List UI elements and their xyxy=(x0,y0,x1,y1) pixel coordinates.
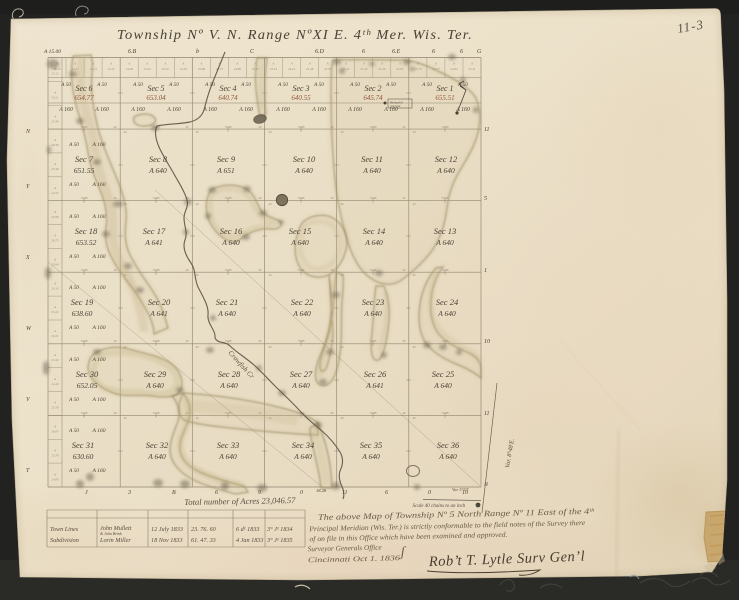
svg-text:640.74: 640.74 xyxy=(218,94,238,102)
svg-text:3: 3 xyxy=(127,490,131,496)
svg-text:10: 10 xyxy=(484,339,490,345)
svg-text:A 640: A 640 xyxy=(292,309,311,318)
svg-text:Sec 14: Sec 14 xyxy=(363,226,386,236)
svg-text:A 50: A 50 xyxy=(277,82,288,88)
svg-text:Sec 11: Sec 11 xyxy=(361,154,383,164)
svg-text:6: 6 xyxy=(215,490,218,496)
svg-text:Sec 33: Sec 33 xyxy=(217,440,239,450)
svg-text:18 Nov 1833: 18 Nov 1833 xyxy=(151,537,183,544)
svg-text:A 160: A 160 xyxy=(166,107,181,113)
svg-text:A 160: A 160 xyxy=(91,397,105,403)
svg-text:A 640: A 640 xyxy=(148,166,167,175)
svg-text:6.D: 6.D xyxy=(315,49,325,55)
svg-text:Sec 32: Sec 32 xyxy=(146,440,169,450)
svg-text:A 641: A 641 xyxy=(144,238,163,247)
svg-text:Sec 8: Sec 8 xyxy=(149,154,168,164)
svg-text:6.B: 6.B xyxy=(128,49,137,55)
svg-text:A 160: A 160 xyxy=(347,107,362,113)
svg-text:A 641: A 641 xyxy=(149,309,168,318)
svg-text:A 50: A 50 xyxy=(240,82,251,88)
svg-text:Sec 34: Sec 34 xyxy=(292,440,315,450)
svg-text:Sec 25: Sec 25 xyxy=(432,369,454,379)
svg-text:A 50: A 50 xyxy=(68,468,79,474)
svg-text:Total number of Acres 23,046.5: Total number of Acres 23,046.57 xyxy=(184,495,296,507)
svg-text:B: B xyxy=(172,490,176,496)
svg-text:A 50: A 50 xyxy=(96,82,107,88)
svg-text:A 15.00: A 15.00 xyxy=(43,49,61,55)
svg-text:J: J xyxy=(85,490,88,496)
svg-text:A 160: A 160 xyxy=(91,468,105,474)
svg-text:A 641: A 641 xyxy=(365,381,384,390)
svg-text:Sec 27: Sec 27 xyxy=(290,369,313,379)
svg-text:645.74: 645.74 xyxy=(363,94,383,102)
svg-text:A 50: A 50 xyxy=(68,357,79,363)
svg-text:0: 0 xyxy=(300,490,303,496)
svg-text:Lorin Miller: Lorin Miller xyxy=(99,537,131,544)
svg-text:Sec 9: Sec 9 xyxy=(217,154,236,164)
svg-text:Sec 4: Sec 4 xyxy=(219,84,236,93)
svg-text:6.E: 6.E xyxy=(392,49,401,55)
svg-text:A 50: A 50 xyxy=(385,82,396,88)
svg-text:Town Lines: Town Lines xyxy=(50,526,79,533)
svg-text:A 640: A 640 xyxy=(436,166,455,175)
svg-text:654.77: 654.77 xyxy=(74,94,94,102)
svg-text:Sec 3: Sec 3 xyxy=(292,84,309,93)
svg-text:A 160: A 160 xyxy=(91,254,105,260)
svg-text:A 640: A 640 xyxy=(221,238,240,247)
svg-text:A 640: A 640 xyxy=(364,238,383,247)
svg-text:Sec 31: Sec 31 xyxy=(72,440,94,450)
svg-text:Sec 12: Sec 12 xyxy=(435,154,458,164)
svg-text:23. 76. 60: 23. 76. 60 xyxy=(191,526,217,533)
svg-text:A 640: A 640 xyxy=(362,166,381,175)
svg-text:6: 6 xyxy=(385,490,388,496)
svg-text:A 640: A 640 xyxy=(437,309,456,318)
svg-text:A 160: A 160 xyxy=(94,107,109,113)
svg-text:653.04: 653.04 xyxy=(146,94,166,102)
svg-text:A 160: A 160 xyxy=(91,142,105,148)
svg-text:A 640: A 640 xyxy=(217,309,236,318)
svg-text:Sec 5: Sec 5 xyxy=(147,84,164,93)
svg-text:Sec 2: Sec 2 xyxy=(364,84,381,93)
svg-text:A 50: A 50 xyxy=(68,397,79,403)
svg-text:A 50: A 50 xyxy=(68,428,79,434)
svg-text:A 160: A 160 xyxy=(202,107,217,113)
svg-text:Sec 23: Sec 23 xyxy=(362,297,384,307)
svg-text:Sec 36: Sec 36 xyxy=(437,440,460,450)
svg-text:638.60: 638.60 xyxy=(72,309,93,318)
svg-text:A 160: A 160 xyxy=(58,107,73,113)
svg-text:6: 6 xyxy=(460,49,463,55)
svg-text:A 640: A 640 xyxy=(435,238,454,247)
svg-text:A 50: A 50 xyxy=(68,325,79,331)
svg-text:A 50: A 50 xyxy=(68,214,79,220)
svg-text:A 50: A 50 xyxy=(68,182,79,188)
svg-text:A 640: A 640 xyxy=(294,166,313,175)
svg-text:Sec 35: Sec 35 xyxy=(360,440,382,450)
svg-text:Sec 18: Sec 18 xyxy=(75,226,98,236)
svg-text:reserved: reserved xyxy=(390,104,401,108)
svg-text:A 160: A 160 xyxy=(91,428,105,434)
svg-text:A 50: A 50 xyxy=(68,142,79,148)
svg-text:A 50: A 50 xyxy=(313,82,324,88)
svg-text:b: b xyxy=(196,49,199,55)
svg-text:Var 5°53′: Var 5°53′ xyxy=(452,487,470,492)
svg-text:Scale 40 chains to an inch: Scale 40 chains to an inch xyxy=(413,504,466,509)
svg-text:Sec 15: Sec 15 xyxy=(289,226,311,236)
svg-text:Sec 29: Sec 29 xyxy=(144,369,167,379)
svg-text:Sec 13: Sec 13 xyxy=(434,226,456,236)
svg-text:A 640: A 640 xyxy=(219,381,238,390)
svg-text:A 640: A 640 xyxy=(145,381,164,390)
svg-text:6 d¹ 1833: 6 d¹ 1833 xyxy=(236,526,260,533)
svg-text:A 640: A 640 xyxy=(361,452,380,461)
svg-text:6: 6 xyxy=(362,49,365,55)
svg-text:Surveyor Generals Office: Surveyor Generals Office xyxy=(308,544,383,554)
svg-text:A 160: A 160 xyxy=(419,107,434,113)
svg-text:A 640: A 640 xyxy=(147,452,166,461)
svg-text:A 160: A 160 xyxy=(91,357,105,363)
svg-text:4 Jan 1833: 4 Jan 1833 xyxy=(236,537,264,544)
svg-text:A 640: A 640 xyxy=(433,381,452,390)
svg-text:A 160: A 160 xyxy=(311,107,326,113)
svg-text:0: 0 xyxy=(428,490,431,496)
svg-text:653.52: 653.52 xyxy=(76,238,97,247)
svg-text:12 July 1833: 12 July 1833 xyxy=(151,526,183,533)
svg-text:11: 11 xyxy=(484,411,490,417)
svg-text:A 160: A 160 xyxy=(275,107,290,113)
svg-text:Sec 17: Sec 17 xyxy=(143,226,166,236)
svg-text:A 651: A 651 xyxy=(216,166,235,175)
svg-text:652.05: 652.05 xyxy=(77,381,98,390)
svg-text:G: G xyxy=(477,49,482,55)
svg-text:11: 11 xyxy=(342,490,348,496)
svg-text:3° J¹ 1835: 3° J¹ 1835 xyxy=(266,537,293,544)
svg-text:Sec 21: Sec 21 xyxy=(216,297,238,307)
svg-text:Sec 6: Sec 6 xyxy=(75,84,92,93)
svg-text:A 50: A 50 xyxy=(60,82,71,88)
svg-text:A 640: A 640 xyxy=(438,452,457,461)
svg-text:A 640: A 640 xyxy=(363,309,382,318)
svg-text:Township Nº V. N. Range NºXI: Township Nº V. N. Range NºXI E. 4ᵗʰ Mer.… xyxy=(117,27,473,42)
svg-text:655.51: 655.51 xyxy=(435,94,454,102)
svg-text:Sec 10: Sec 10 xyxy=(293,154,316,164)
svg-text:A 160: A 160 xyxy=(91,214,105,220)
svg-text:A 640: A 640 xyxy=(218,452,237,461)
svg-text:640.55: 640.55 xyxy=(291,94,311,102)
svg-text:A 160: A 160 xyxy=(238,107,253,113)
svg-text:Sec 26: Sec 26 xyxy=(364,369,387,379)
svg-text:A 50: A 50 xyxy=(68,285,79,291)
svg-text:Sec 20: Sec 20 xyxy=(148,297,171,307)
svg-text:Sec 22: Sec 22 xyxy=(291,297,314,307)
svg-text:3° J¹ 1834: 3° J¹ 1834 xyxy=(266,526,293,533)
svg-text:Subdivision: Subdivision xyxy=(50,537,79,544)
svg-text:Sec 28: Sec 28 xyxy=(218,369,241,379)
svg-text:A 160: A 160 xyxy=(130,107,145,113)
svg-text:Sec 1: Sec 1 xyxy=(436,84,453,93)
svg-text:& John Brink: & John Brink xyxy=(100,531,122,536)
svg-text:A 50: A 50 xyxy=(349,82,360,88)
svg-text:Sec 24: Sec 24 xyxy=(436,297,459,307)
svg-text:Sec 30: Sec 30 xyxy=(76,369,99,379)
svg-text:A 50: A 50 xyxy=(168,82,179,88)
svg-text:5: 5 xyxy=(484,196,487,202)
svg-text:Sec 7: Sec 7 xyxy=(75,154,94,164)
svg-text:A 160: A 160 xyxy=(91,285,105,291)
svg-text:Sec 19: Sec 19 xyxy=(71,297,94,307)
svg-text:Sec 16: Sec 16 xyxy=(220,226,243,236)
svg-text:630.60: 630.60 xyxy=(73,452,94,461)
svg-text:1: 1 xyxy=(484,268,487,274)
svg-text:A 640: A 640 xyxy=(291,381,310,390)
svg-text:61. 47. 33: 61. 47. 33 xyxy=(191,537,216,544)
svg-text:6: 6 xyxy=(432,49,435,55)
svg-text:A 640: A 640 xyxy=(293,452,312,461)
svg-text:X: X xyxy=(25,255,30,261)
svg-text:A 50: A 50 xyxy=(132,82,143,88)
svg-text:A 160: A 160 xyxy=(91,325,105,331)
svg-text:A 50: A 50 xyxy=(68,254,79,260)
svg-text:A 50: A 50 xyxy=(421,82,432,88)
svg-text:A 640: A 640 xyxy=(290,238,309,247)
svg-text:651.55: 651.55 xyxy=(74,166,95,175)
svg-text:11: 11 xyxy=(484,127,490,133)
svg-text:A 50: A 50 xyxy=(204,82,215,88)
svg-text:A 160: A 160 xyxy=(91,182,105,188)
